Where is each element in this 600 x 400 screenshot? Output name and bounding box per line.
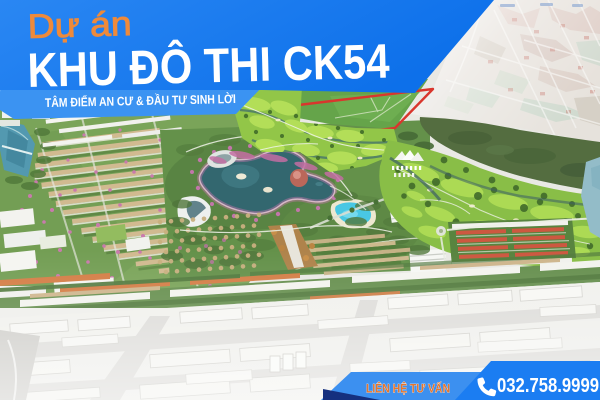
svg-text:Dự án: Dự án: [27, 5, 132, 46]
svg-text:KHU ĐÔ THI CK54: KHU ĐÔ THI CK54: [27, 34, 390, 98]
svg-text:032.758.9999: 032.758.9999: [497, 374, 599, 397]
svg-text:LIÊN HỆ TƯ VẤN: LIÊN HỆ TƯ VẤN: [366, 381, 450, 396]
